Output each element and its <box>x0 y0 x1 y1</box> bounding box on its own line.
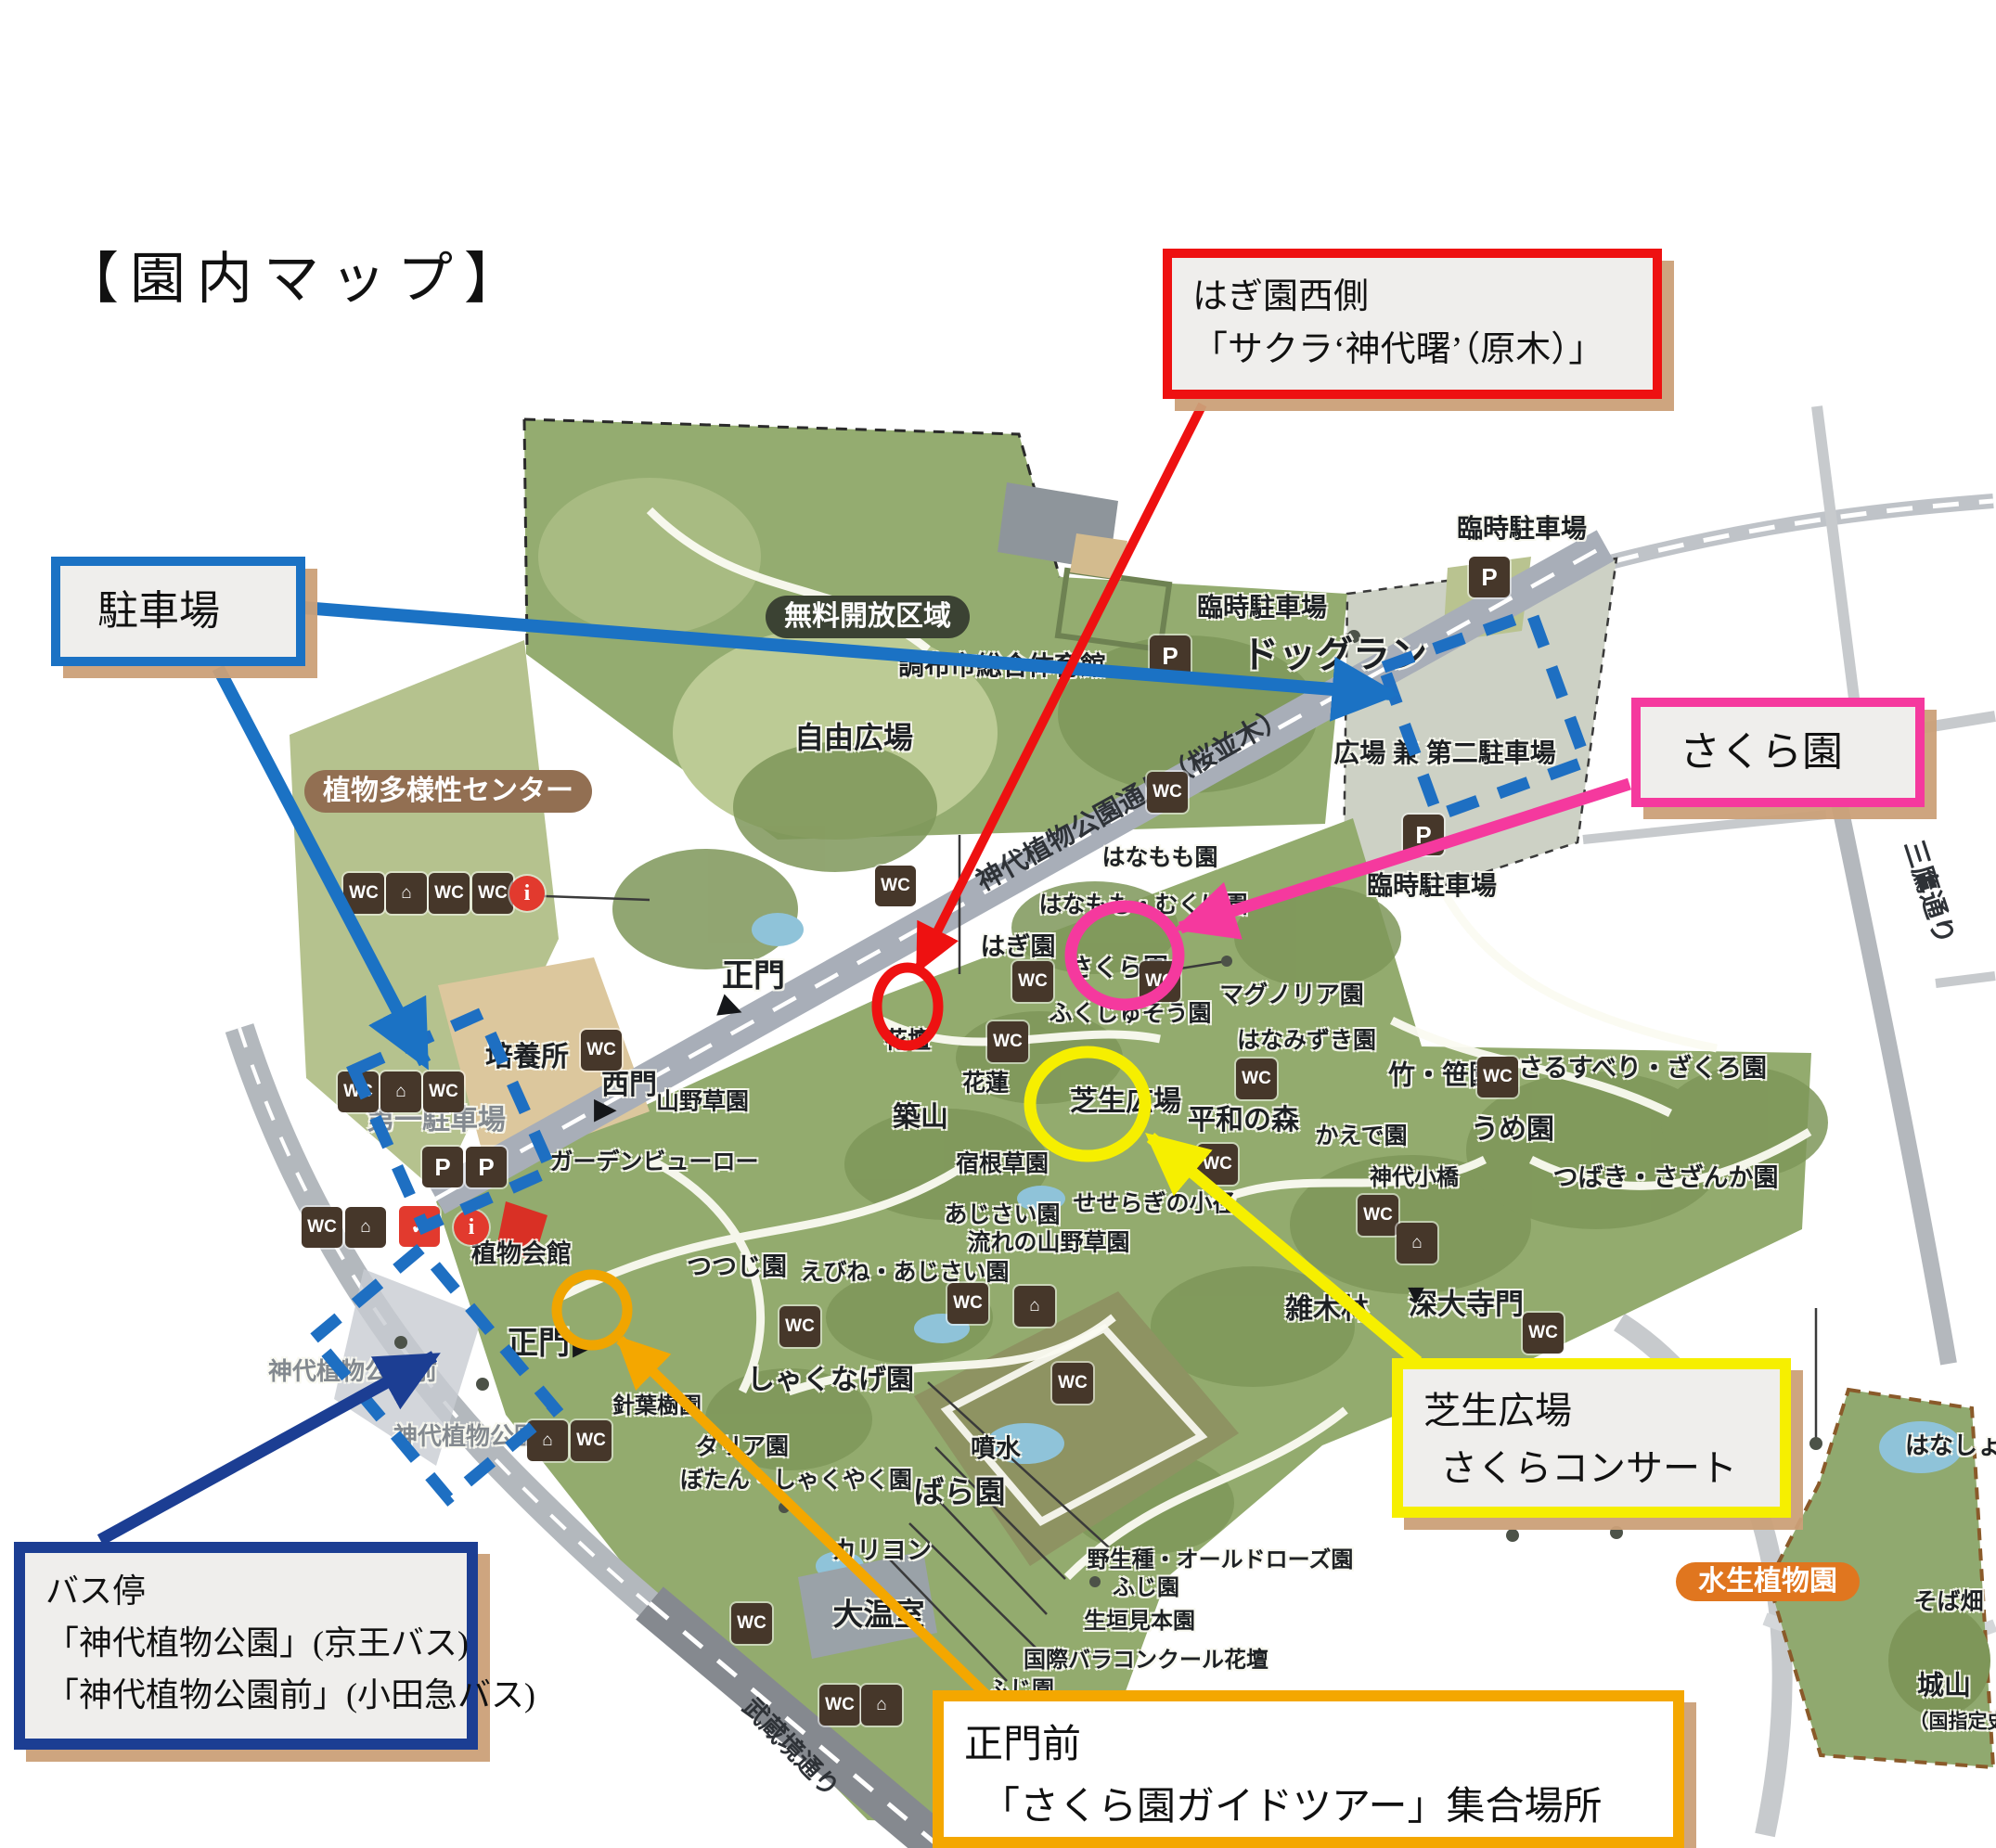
park-map-page: 無料開放区域調布市総合体育館自由広場臨時駐車場臨時駐車場臨時駐車場ドッグラン広場… <box>0 0 1996 1848</box>
checkpoint-icon: ✓ <box>399 1206 440 1247</box>
map-label: はぎ園 <box>981 935 1056 960</box>
map-label: 城山 <box>1917 1674 1971 1700</box>
map-label: はなしょ <box>1905 1433 1996 1457</box>
parking-icon: P <box>422 1147 463 1187</box>
map-label: しゃくなげ園 <box>747 1367 914 1394</box>
restroom-icon: WC <box>779 1306 820 1347</box>
parking-icon: P <box>466 1147 507 1187</box>
map-label: 噴水 <box>971 1437 1021 1462</box>
callout-bus-line3: 「神代植物公園前」(小田急バス) <box>45 1670 446 1722</box>
callout-gate-line1: 正門前 <box>964 1714 1653 1777</box>
map-label: せせらぎの小径 <box>1073 1193 1235 1216</box>
restroom-icon: WC <box>1052 1363 1093 1404</box>
gate-triangle-icon: ▶ <box>594 1096 615 1123</box>
map-label: 平和の森 <box>1188 1107 1299 1135</box>
gate-triangle-icon: ▶ <box>716 991 746 1024</box>
map-label: ふくじゅそう園 <box>1049 1003 1211 1026</box>
restroom-icon: WC <box>571 1420 612 1461</box>
restroom-icon: WC <box>1523 1313 1564 1354</box>
map-label: 植物会館 <box>471 1242 572 1267</box>
gate-triangle-icon: ▶ <box>573 1331 594 1359</box>
callout-parking-label: 駐車場 <box>97 579 276 644</box>
map-label: 宿根草園 <box>956 1153 1049 1176</box>
map-label: 臨時駐車場 <box>1457 516 1587 542</box>
callout-lawn-line1: 芝生広場 <box>1423 1382 1759 1440</box>
map-label: ふじ園 <box>1113 1577 1179 1599</box>
map-label: 臨時駐車場 <box>1367 873 1497 899</box>
map-label: 流れの山野草園 <box>967 1232 1129 1255</box>
map-label: 正門 <box>507 1328 570 1359</box>
map-label: 広場 兼 第二駐車場 <box>1333 740 1556 766</box>
map-label: マグノリア園 <box>1219 982 1363 1007</box>
restroom-icon: WC <box>1477 1057 1518 1097</box>
rest-house-icon: ⌂ <box>345 1207 386 1248</box>
blue-arrow-first-parking <box>218 668 425 1063</box>
restroom-icon: WC <box>947 1283 988 1324</box>
map-label: 培養所 <box>485 1044 569 1072</box>
map-label: ぼたん・しゃくやく園 <box>680 1469 912 1493</box>
map-label: 水生植物園 <box>1676 1562 1860 1601</box>
rest-house-icon: ⌂ <box>1014 1286 1055 1327</box>
map-label: 生垣見本園 <box>1084 1611 1195 1633</box>
map-label: 大温室 <box>833 1599 925 1630</box>
map-label: 三鷹通り <box>1899 837 1957 947</box>
map-label: はなもも・むくげ園 <box>1038 894 1247 918</box>
map-label: ダリア園 <box>696 1436 789 1459</box>
restroom-icon: WC <box>1197 1144 1238 1185</box>
callout-bus-line1: バス停 <box>45 1566 446 1618</box>
callout-bus-line2: 「神代植物公園」(京王バス) <box>45 1618 446 1670</box>
restroom-icon: WC <box>875 866 916 906</box>
map-label: 神代植物公園 <box>393 1424 538 1448</box>
callout-sakura-label: さくら園 <box>1680 720 1895 785</box>
map-label: うめ園 <box>1471 1116 1554 1144</box>
callout-hagi-line1: はぎ園西側 <box>1192 271 1632 324</box>
map-label: かえで園 <box>1315 1125 1407 1149</box>
restroom-icon: WC <box>472 873 513 914</box>
pink-arrow-sakura <box>1180 784 1629 928</box>
map-label: 芝生広場 <box>1070 1088 1181 1116</box>
map-label: 自由広場 <box>794 723 913 752</box>
restroom-icon: WC <box>1147 772 1188 813</box>
callout-hagi-west: はぎ園西側 「サクラ‘神代曙’（原木）」 <box>1163 249 1662 399</box>
rest-house-icon: ⌂ <box>1397 1223 1437 1264</box>
map-label: 正門 <box>722 960 785 992</box>
map-label: ドッグラン <box>1242 636 1427 674</box>
city-roads <box>1568 406 1995 1835</box>
map-label: つつじ園 <box>687 1255 787 1280</box>
map-label: はなみずき園 <box>1237 1030 1376 1053</box>
map-label: 神代小橋 <box>1370 1167 1459 1189</box>
map-label: えびね・あじさい園 <box>800 1262 1009 1285</box>
gate-triangle-icon: ▼ <box>1402 1281 1430 1309</box>
restroom-icon: WC <box>338 1072 379 1112</box>
callout-main-gate-tour: 正門前 「さくら園ガイドツアー」集合場所 <box>933 1690 1684 1848</box>
parking-icon: P <box>1469 557 1510 597</box>
map-label: 調布市総合体育館 <box>898 653 1106 679</box>
rest-house-icon: ⌂ <box>861 1685 902 1726</box>
page-title: 【園内マップ】 <box>63 234 531 314</box>
info-icon: i <box>509 876 545 911</box>
rest-house-icon: ⌂ <box>527 1420 568 1461</box>
rest-house-icon: ⌂ <box>386 873 427 914</box>
map-label: あじさい園 <box>944 1204 1060 1227</box>
map-label: 針葉樹園 <box>612 1395 702 1418</box>
map-label: さるすべり・ざくろ園 <box>1518 1057 1767 1082</box>
map-label: 山野草園 <box>656 1091 749 1114</box>
map-label: 植物多様性センター <box>304 770 592 813</box>
restroom-icon: WC <box>423 1072 464 1112</box>
restroom-icon: WC <box>819 1685 860 1726</box>
callout-lawn-concert: 芝生広場 さくらコンサート <box>1392 1358 1791 1518</box>
map-label: 花壇 <box>884 1030 931 1053</box>
map-label: 臨時駐車場 <box>1197 595 1327 621</box>
map-label: はなもも園 <box>1101 847 1217 870</box>
map-label: ガーデンビューロー <box>549 1151 758 1174</box>
restroom-icon: WC <box>731 1603 772 1644</box>
restroom-icon: WC <box>302 1207 342 1248</box>
restroom-icon: WC <box>429 873 470 914</box>
restroom-icon: WC <box>1358 1195 1398 1236</box>
map-label: （国指定史 <box>1910 1713 1996 1732</box>
map-label: 無料開放区域 <box>766 596 970 638</box>
restroom-icon: WC <box>1236 1059 1277 1099</box>
callout-bus-stop: バス停 「神代植物公園」(京王バス) 「神代植物公園前」(小田急バス) <box>14 1542 478 1750</box>
parking-icon: P <box>1403 815 1444 855</box>
map-label: 神代植物公園前 <box>268 1359 437 1383</box>
map-label: つばき・さざんか園 <box>1553 1166 1779 1191</box>
callout-lawn-line2: さくらコンサート <box>1423 1440 1759 1497</box>
info-icon: i <box>454 1210 489 1245</box>
map-label: カリヨン <box>831 1539 932 1564</box>
restroom-icon: WC <box>987 1021 1028 1062</box>
callout-sakura-garden: さくら園 <box>1631 698 1925 807</box>
callout-parking: 駐車場 <box>51 557 305 666</box>
restroom-icon: WC <box>1012 961 1053 1002</box>
red-arrow-hagi <box>919 404 1203 969</box>
restroom-icon: WC <box>1140 961 1180 1002</box>
map-label: そば畑 <box>1913 1591 1983 1614</box>
restroom-icon: WC <box>581 1030 622 1071</box>
rest-house-icon: ⌂ <box>380 1072 421 1112</box>
map-label: 築山 <box>893 1104 948 1132</box>
map-label: 野生種・オールドローズ園 <box>1088 1549 1354 1572</box>
map-label: 雑木林 <box>1285 1296 1369 1324</box>
map-label: 花蓮 <box>962 1072 1009 1096</box>
callout-gate-line2: 「さくら園ガイドツアー」集合場所 <box>964 1777 1653 1839</box>
map-label: ばら園 <box>914 1477 1006 1508</box>
map-label: 国際バラコンクール花壇 <box>1024 1649 1268 1672</box>
restroom-icon: WC <box>343 873 384 914</box>
callout-hagi-line2: 「サクラ‘神代曙’（原木）」 <box>1192 324 1632 377</box>
parking-icon: P <box>1150 635 1191 676</box>
